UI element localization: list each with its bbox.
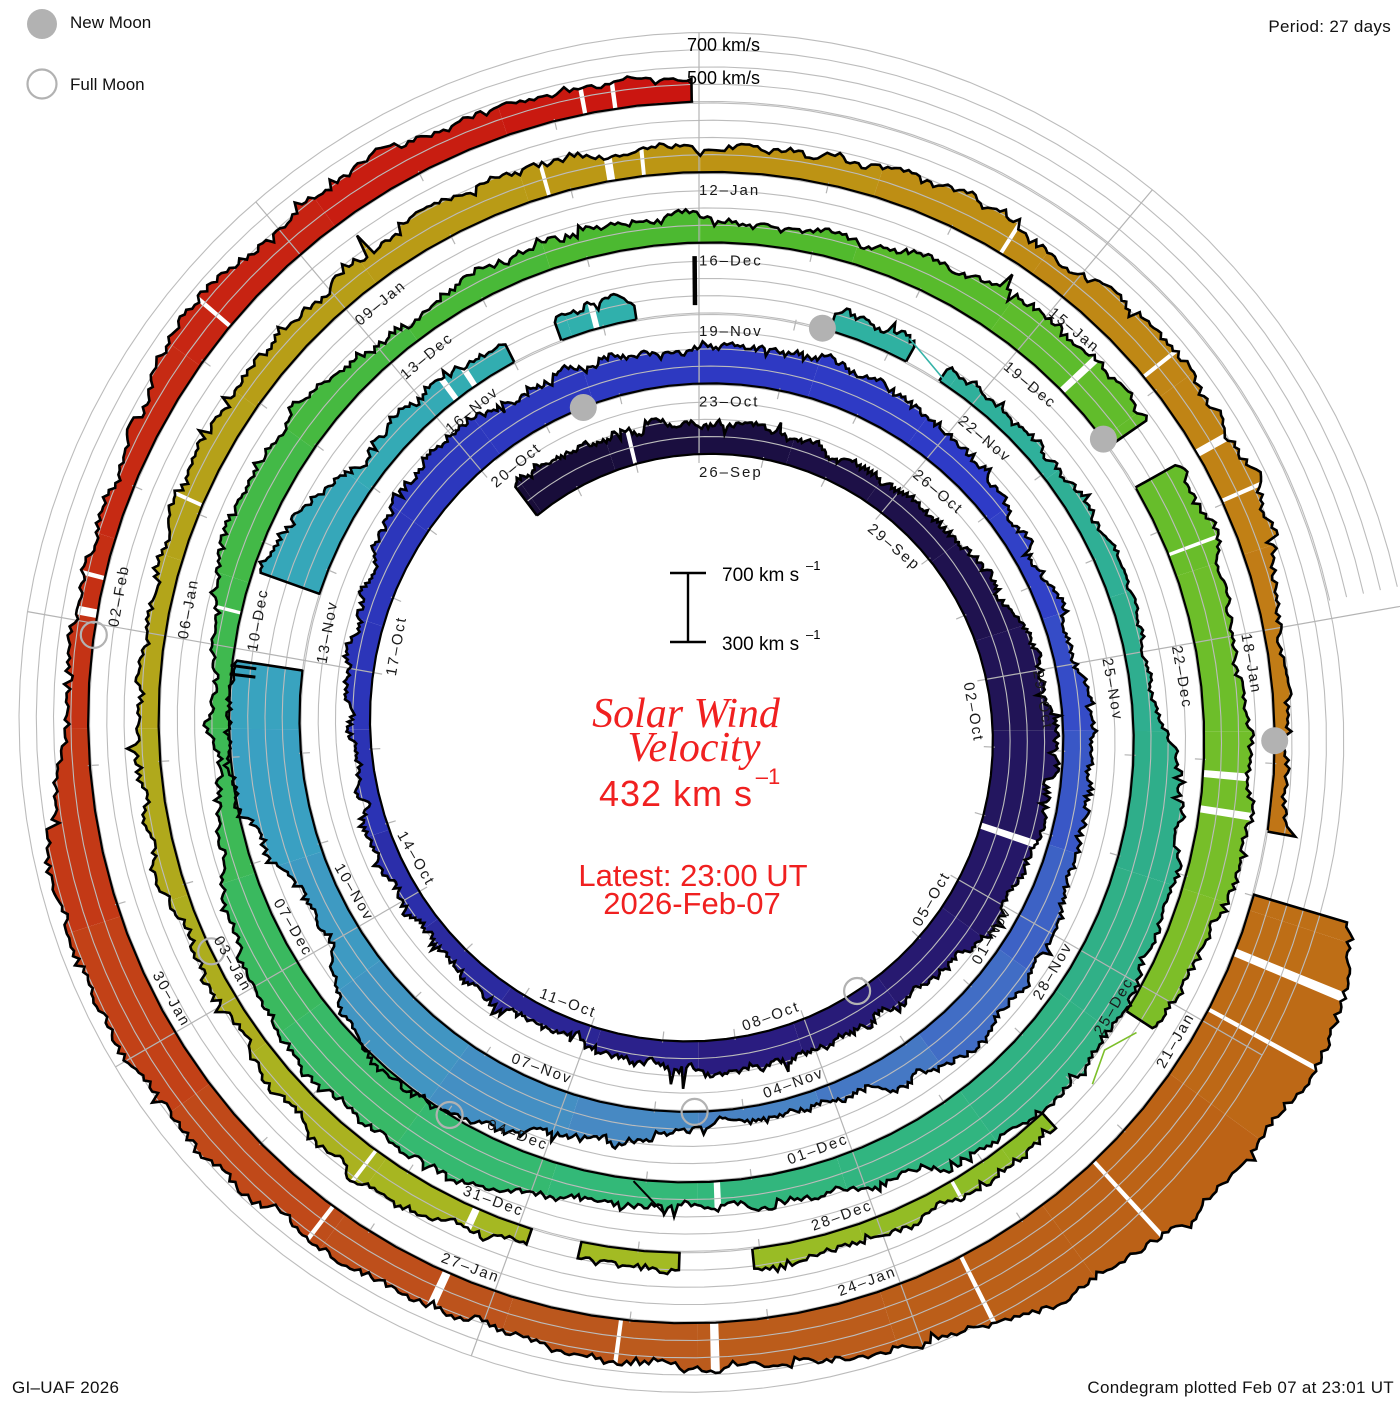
svg-text:2026-Feb-07: 2026-Feb-07	[603, 886, 781, 921]
svg-text:500 km/s: 500 km/s	[687, 68, 760, 88]
svg-text:700 km/s: 700 km/s	[687, 35, 760, 55]
svg-text:432 km s: 432 km s	[599, 773, 753, 814]
svg-text:–1: –1	[806, 627, 820, 642]
svg-text:GI–UAF 2026: GI–UAF 2026	[12, 1378, 119, 1397]
svg-text:16–Dec: 16–Dec	[699, 253, 763, 270]
svg-text:–1: –1	[756, 764, 780, 789]
svg-text:New Moon: New Moon	[70, 13, 151, 32]
svg-text:19–Nov: 19–Nov	[699, 323, 763, 340]
svg-text:12–Jan: 12–Jan	[699, 182, 760, 199]
svg-text:–1: –1	[806, 558, 820, 573]
svg-text:300 km s: 300 km s	[722, 634, 799, 655]
svg-text:700 km s: 700 km s	[722, 565, 799, 586]
svg-text:26–Sep: 26–Sep	[699, 464, 763, 481]
svg-text:Velocity: Velocity	[628, 725, 761, 771]
svg-text:23–Oct: 23–Oct	[699, 394, 759, 411]
svg-text:Period: 27 days: Period: 27 days	[1268, 17, 1391, 36]
svg-text:Condegram plotted Feb 07 at 23: Condegram plotted Feb 07 at 23:01 UT	[1087, 1378, 1394, 1397]
svg-text:Full Moon: Full Moon	[70, 75, 145, 94]
